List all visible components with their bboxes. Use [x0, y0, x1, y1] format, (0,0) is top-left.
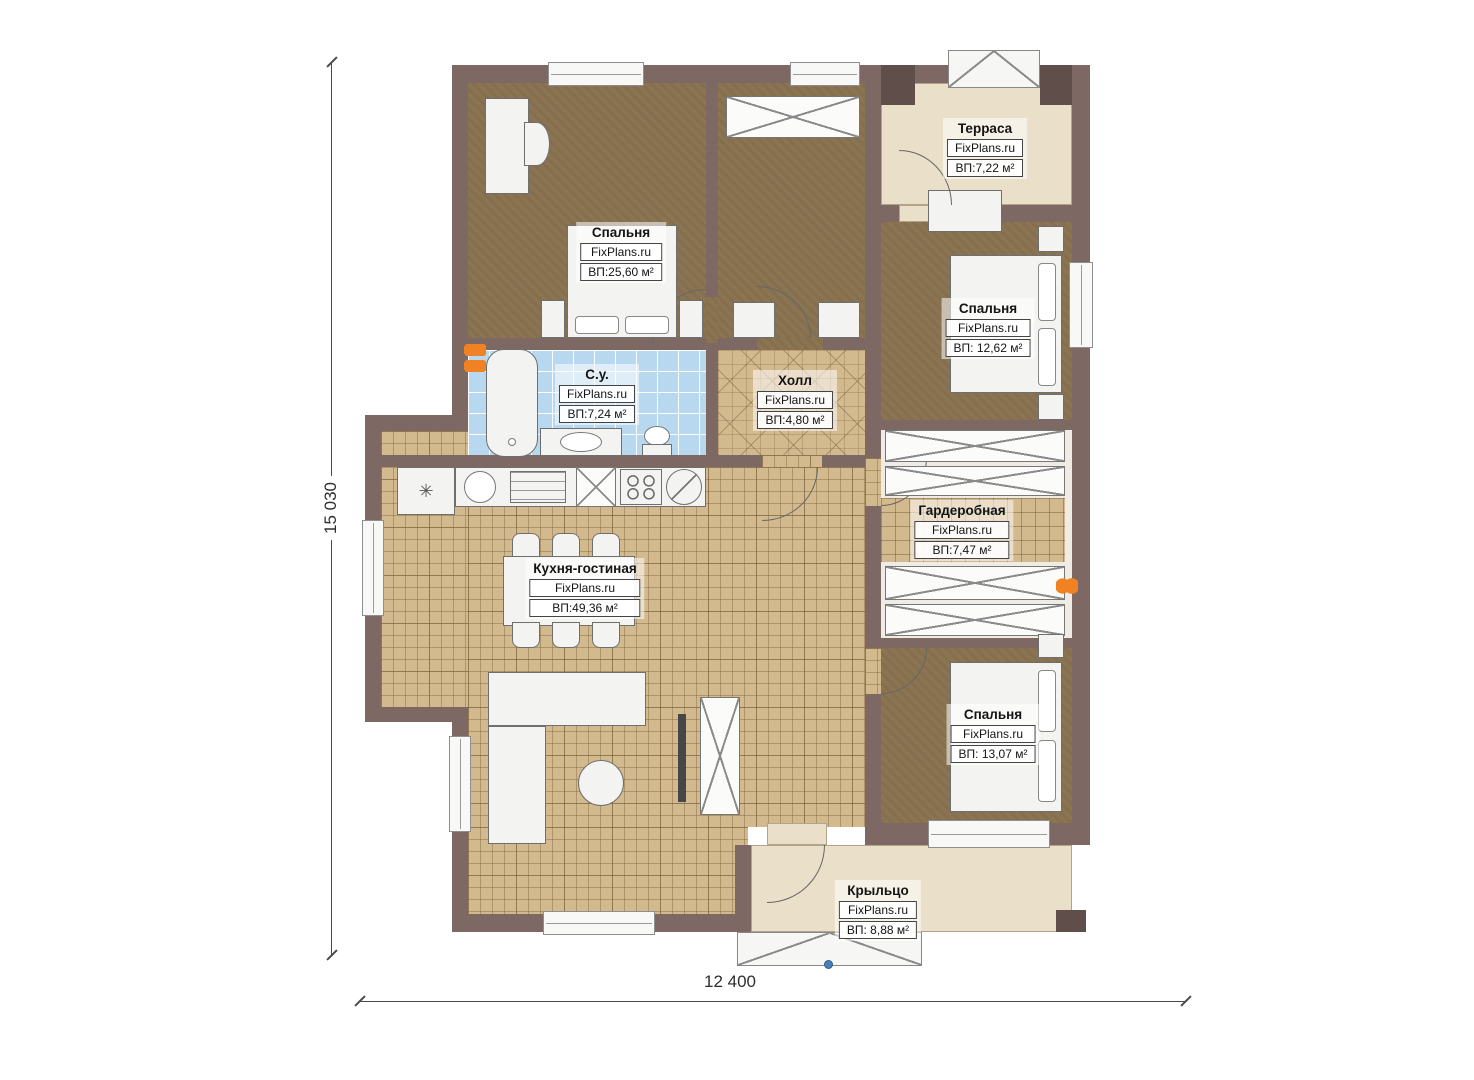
- window-corridor-top: [790, 62, 860, 86]
- desk-chair: [524, 122, 550, 166]
- dimension-height-label: 15 030: [321, 476, 341, 540]
- room-area: ВП:7,24 м²: [559, 405, 635, 423]
- wardrobe-icon: [885, 604, 1065, 636]
- opening-kitchen-bedroom3: [865, 648, 881, 694]
- floor-plan-canvas: ✳ Спальня FixPlans.ru ВП:25,60 м² Террас…: [0, 0, 1474, 1080]
- opening-bedroom1-door: [706, 297, 718, 343]
- wall-porch-left: [735, 845, 751, 932]
- porch-step-marker: [824, 960, 833, 969]
- room-name: Терраса: [947, 120, 1023, 137]
- radiator-icon: [464, 344, 486, 356]
- room-label-bedroom-1: Спальня FixPlans.ru ВП:25,60 м²: [576, 222, 666, 283]
- bed-2-pillow: [1038, 328, 1056, 386]
- window-bedroom1: [548, 62, 644, 86]
- terrace-steps: [948, 50, 1040, 88]
- room-watermark: FixPlans.ru: [559, 385, 635, 403]
- bed-1-pillow: [625, 316, 669, 334]
- opening-entrance-door: [767, 823, 827, 845]
- room-label-bedroom-3: Спальня FixPlans.ru ВП: 13,07 м²: [947, 704, 1040, 765]
- wall-right: [1072, 65, 1090, 845]
- tv-icon: [678, 714, 686, 802]
- dining-chair: [512, 622, 540, 648]
- room-watermark: FixPlans.ru: [951, 725, 1036, 743]
- tv-stand: [700, 697, 740, 815]
- dining-chair: [552, 622, 580, 648]
- dishwasher-icon: [510, 471, 566, 503]
- nightstand: [1038, 394, 1064, 420]
- bed-3-pillow: [1038, 670, 1056, 732]
- porch-pillar: [1056, 910, 1086, 932]
- nightstand: [541, 300, 565, 338]
- fridge-icon: [576, 467, 616, 507]
- window-kitchen-bottom: [543, 911, 655, 935]
- room-label-bedroom-2: Спальня FixPlans.ru ВП: 12,62 м²: [942, 298, 1035, 359]
- room-watermark: FixPlans.ru: [757, 391, 833, 409]
- opening-hall-kitchen: [762, 455, 822, 467]
- room-area: ВП: 13,07 м²: [951, 745, 1036, 763]
- terrace-pillar-right: [1040, 65, 1072, 105]
- room-name: Спальня: [580, 224, 662, 241]
- wall-bay-bottom: [365, 707, 468, 722]
- opening-hall-corridor: [757, 338, 823, 350]
- room-watermark: FixPlans.ru: [914, 521, 1009, 539]
- wardrobe-icon: [726, 96, 860, 138]
- oven-icon: [666, 469, 702, 505]
- dimension-tick: [326, 56, 337, 67]
- bathtub-drain: [508, 438, 516, 446]
- nightstand: [1038, 226, 1064, 252]
- dimension-line-horizontal: [360, 1001, 1186, 1002]
- corner-cabinet: ✳: [397, 467, 455, 515]
- room-label-porch: Крыльцо FixPlans.ru ВП: 8,88 м²: [835, 880, 921, 941]
- room-name: С.у.: [559, 366, 635, 383]
- dimension-width-label: 12 400: [698, 972, 762, 992]
- room-area: ВП:7,47 м²: [914, 541, 1009, 559]
- window-bedroom2: [1069, 262, 1093, 348]
- room-area: ВП:7,22 м²: [947, 159, 1023, 177]
- coffee-table: [578, 760, 624, 806]
- bed-1-pillow: [575, 316, 619, 334]
- desk: [485, 98, 529, 194]
- toilet-tank: [642, 444, 672, 456]
- room-label-kitchen-living: Кухня-гостиная FixPlans.ru ВП:49,36 м²: [525, 558, 644, 619]
- wardrobe-icon: [885, 566, 1065, 600]
- nightstand: [679, 300, 703, 338]
- room-name: Холл: [757, 372, 833, 389]
- wardrobe-icon: [885, 466, 1065, 496]
- room-area: ВП:49,36 м²: [529, 599, 640, 617]
- wardrobe-icon: [885, 430, 1065, 462]
- cabinet: [733, 302, 775, 338]
- dining-chair: [592, 622, 620, 648]
- opening-kitchen-corridor: [865, 458, 881, 506]
- room-watermark: FixPlans.ru: [947, 139, 1023, 157]
- radiator-icon: [464, 360, 486, 372]
- bed-2-pillow: [1038, 263, 1056, 321]
- room-area: ВП: 8,88 м²: [839, 921, 917, 939]
- room-label-terrace: Терраса FixPlans.ru ВП:7,22 м²: [943, 118, 1027, 179]
- window-bedroom3: [928, 820, 1050, 848]
- room-name: Крыльцо: [839, 882, 917, 899]
- room-name: Гардеробная: [914, 502, 1009, 519]
- room-area: ВП: 12,62 м²: [946, 339, 1031, 357]
- room-watermark: FixPlans.ru: [580, 243, 662, 261]
- kitchen-sink-icon: [464, 471, 496, 503]
- window-living: [449, 736, 471, 832]
- wall-left-upper: [452, 65, 468, 431]
- room-name: Кухня-гостиная: [529, 560, 640, 577]
- cabinet: [818, 302, 860, 338]
- room-watermark: FixPlans.ru: [839, 901, 917, 919]
- room-name: Спальня: [951, 706, 1036, 723]
- room-label-hall: Холл FixPlans.ru ВП:4,80 м²: [753, 370, 837, 431]
- room-area: ВП:25,60 м²: [580, 263, 662, 281]
- toilet-icon: [644, 426, 670, 446]
- room-label-wardrobe-room: Гардеробная FixPlans.ru ВП:7,47 м²: [910, 500, 1013, 561]
- dimension-tick: [326, 949, 337, 960]
- bed-3-pillow: [1038, 740, 1056, 802]
- room-area: ВП:4,80 м²: [757, 411, 833, 429]
- room-watermark: FixPlans.ru: [529, 579, 640, 597]
- stove-icon: [620, 469, 662, 505]
- radiator-icon: [1056, 578, 1078, 594]
- terrace-pillar-left: [881, 65, 915, 105]
- wall-bath-hall: [706, 350, 718, 455]
- window-kitchen-bay: [362, 520, 384, 616]
- wall-under-bedroom2: [881, 420, 1072, 430]
- sink-icon: [560, 432, 602, 452]
- nightstand: [1038, 634, 1064, 658]
- room-label-bathroom: С.у. FixPlans.ru ВП:7,24 м²: [555, 364, 639, 425]
- sofa: [488, 672, 646, 726]
- room-name: Спальня: [946, 300, 1031, 317]
- sofa-chaise: [488, 726, 546, 844]
- room-watermark: FixPlans.ru: [946, 319, 1031, 337]
